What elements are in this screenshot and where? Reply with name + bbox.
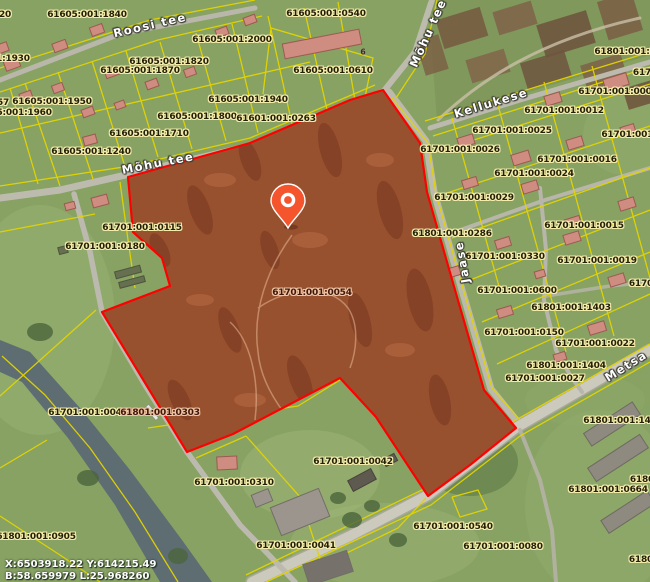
aerial-basemap — [0, 0, 650, 582]
coords-xy: X:6503918.22 Y:614215.49 — [5, 559, 156, 571]
map-canvas[interactable]: 2061605:001:184061605:001:200061605:001:… — [0, 0, 650, 582]
coords-bl: B:58.659979 L:25.968260 — [5, 571, 156, 582]
coordinate-readout: X:6503918.22 Y:614215.49 B:58.659979 L:2… — [5, 559, 156, 582]
